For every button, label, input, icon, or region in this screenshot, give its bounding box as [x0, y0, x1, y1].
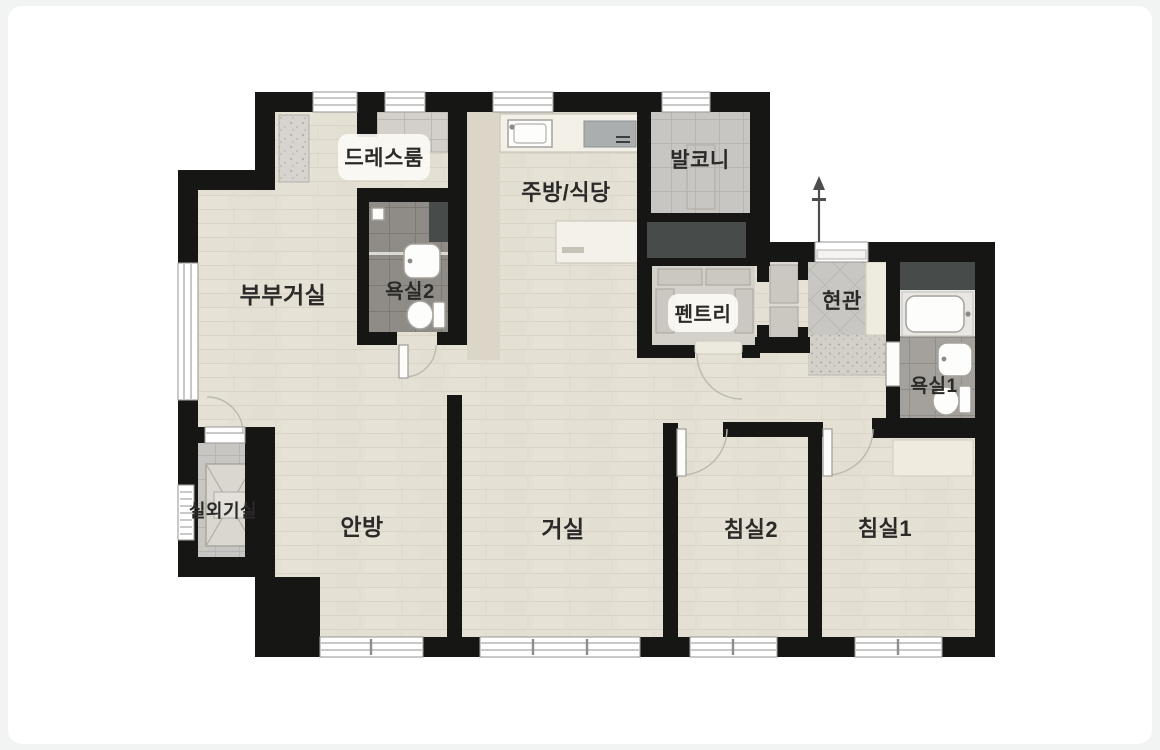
- window-balcony: [662, 92, 710, 112]
- window-living-room: [480, 637, 640, 657]
- pantry-door-leaf: [695, 341, 742, 354]
- room-label-balcony: 발코니: [670, 149, 729, 172]
- room-label-bathroom1: 욕실1: [910, 375, 957, 397]
- floor-plan: 드레스룸 욕실2 부부거실 주방/식당 발코니 펜트리 현관 욕실1 실외기실 …: [0, 0, 1160, 750]
- entry-mat: [808, 335, 886, 375]
- hall-cabinet-top: [770, 265, 798, 303]
- window-top-2: [385, 92, 425, 112]
- wall-dressblock-right: [448, 92, 467, 345]
- floor-plan-page: 드레스룸 욕실2 부부거실 주방/식당 발코니 펜트리 현관 욕실1 실외기실 …: [0, 0, 1160, 750]
- window-bedroom2: [690, 637, 777, 657]
- bathroom1-door: [886, 342, 900, 386]
- sink: [938, 343, 972, 376]
- outside-cutout-top-left: [186, 86, 255, 170]
- wall-bathroom1-bottom: [872, 418, 975, 438]
- window-top-1: [313, 92, 357, 112]
- bathroom2-door-leaf: [399, 345, 408, 378]
- wall-outdoor-top-left: [178, 427, 205, 443]
- window-bedroom1: [855, 637, 942, 657]
- wall-entrance-bottom: [755, 337, 810, 353]
- room-label-kitchen-dining: 주방/식당: [521, 180, 611, 205]
- storage-dark-box: [647, 222, 746, 258]
- cooktop: [584, 121, 636, 147]
- wall-right: [975, 242, 995, 657]
- wall-living-bedroom2: [663, 423, 678, 637]
- bathroom1-storage: [900, 262, 975, 290]
- wall-bedroom2-bedroom1: [808, 422, 822, 637]
- wall-entrance-top: [770, 242, 995, 262]
- room-label-master-living: 부부거실: [240, 282, 327, 308]
- shoe-closet: [866, 262, 888, 335]
- room-label-bedroom1: 침실1: [858, 516, 912, 541]
- kitchen-sink: [508, 120, 552, 147]
- shower-head: [372, 208, 384, 220]
- wall-bathroom2-bottom-right: [437, 332, 467, 345]
- bedroom1-closet: [893, 440, 973, 476]
- bathroom2-storage: [429, 198, 448, 242]
- wall-top-stub: [357, 92, 377, 137]
- bedroom2-door-leaf: [677, 429, 686, 476]
- sink: [404, 244, 440, 278]
- wall-bathroom2-bottom-left: [357, 332, 397, 345]
- wall-masterbed-living: [447, 395, 462, 637]
- room-label-bathroom2: 욕실2: [385, 280, 434, 303]
- wall-pantry-left: [637, 266, 652, 358]
- toilet: [407, 301, 445, 329]
- window-kitchen: [493, 92, 553, 112]
- room-label-master-bedroom: 안방: [340, 514, 383, 540]
- window-master-living: [178, 263, 198, 400]
- room-label-entrance: 현관: [822, 290, 862, 313]
- window-master-bedroom: [320, 637, 423, 657]
- bathtub: [902, 292, 973, 336]
- room-label-pantry: 펜트리: [675, 303, 732, 326]
- wardrobe: [279, 115, 309, 182]
- wall-balcony-left: [637, 92, 651, 213]
- front-door: [815, 242, 868, 262]
- room-label-dressroom: 드레스룸: [344, 147, 423, 170]
- room-label-bedroom2: 침실2: [724, 517, 778, 542]
- outside-cutout-bottom-left: [172, 577, 255, 657]
- wall-bathroom1-left-upper: [886, 262, 900, 342]
- room-label-outdoor-unit: 실외기실: [189, 501, 257, 521]
- entrance-indicator: [812, 176, 826, 242]
- island-table: [556, 221, 646, 263]
- room-label-living-room: 거실: [541, 516, 584, 542]
- wall-bathroom2-top: [357, 188, 448, 202]
- wall-bathroom2-left: [357, 188, 369, 345]
- outdoor-unit-door: [205, 427, 245, 443]
- wall-vestibule-a1: [757, 262, 769, 282]
- wall-pantry-bottom-left: [637, 345, 695, 358]
- bedroom1-door-leaf: [823, 429, 832, 476]
- wall-vestibule-b1: [798, 262, 808, 280]
